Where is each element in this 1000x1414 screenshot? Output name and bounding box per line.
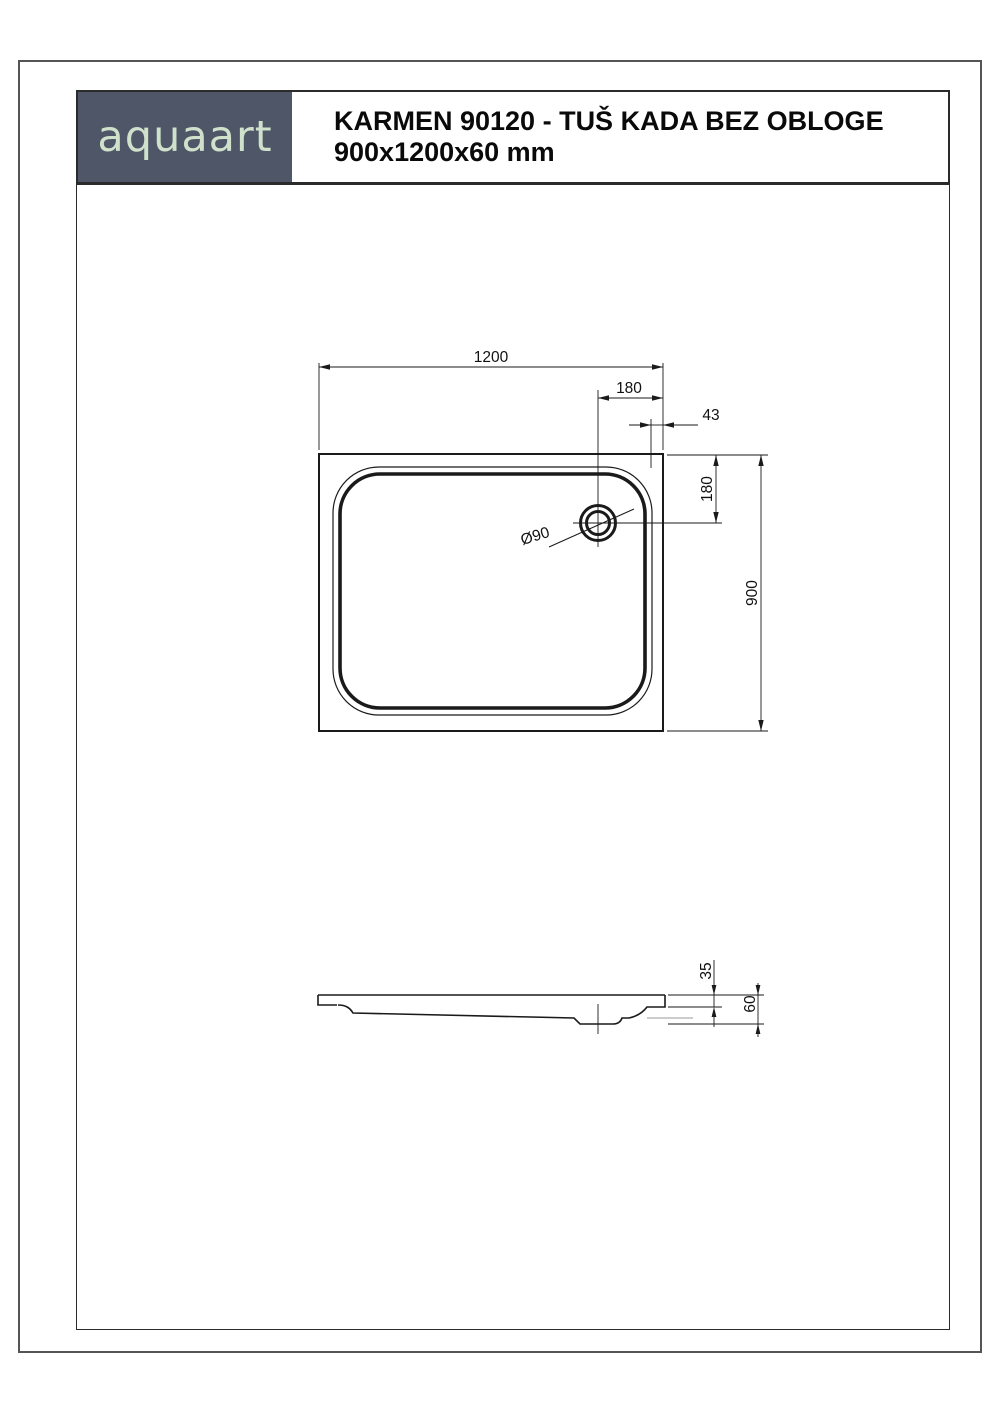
basin-inner-edge [340,474,645,708]
dim-drain-top-180: 180 [667,455,768,523]
technical-drawing: Ø90 1200 180 [0,0,1000,1414]
basin-outer-edge [333,467,652,715]
side-view: 35 60 [318,960,764,1037]
top-view: Ø90 1200 180 [319,349,768,731]
page: aquaart KARMEN 90120 - TUŠ KADA BEZ OBLO… [0,0,1000,1414]
dim-basin-depth-35: 35 [668,960,764,1027]
dim-rim-43: 43 [629,407,720,468]
drain-diameter-label: Ø90 [519,524,552,549]
svg-text:1200: 1200 [474,349,509,366]
dim-drain-right-180: 180 [598,380,663,401]
svg-text:900: 900 [744,580,761,606]
tray-outline [319,454,663,731]
dim-width-1200: 1200 [319,349,663,450]
dim-depth-900: 900 [667,455,768,731]
svg-text:35: 35 [698,962,715,979]
svg-text:43: 43 [702,407,719,424]
svg-text:180: 180 [616,380,642,397]
svg-text:60: 60 [742,995,759,1013]
side-shell-profile [338,995,665,1024]
side-left-lip [318,995,337,1005]
dim-total-height-60: 60 [668,983,764,1037]
svg-text:180: 180 [699,476,716,502]
